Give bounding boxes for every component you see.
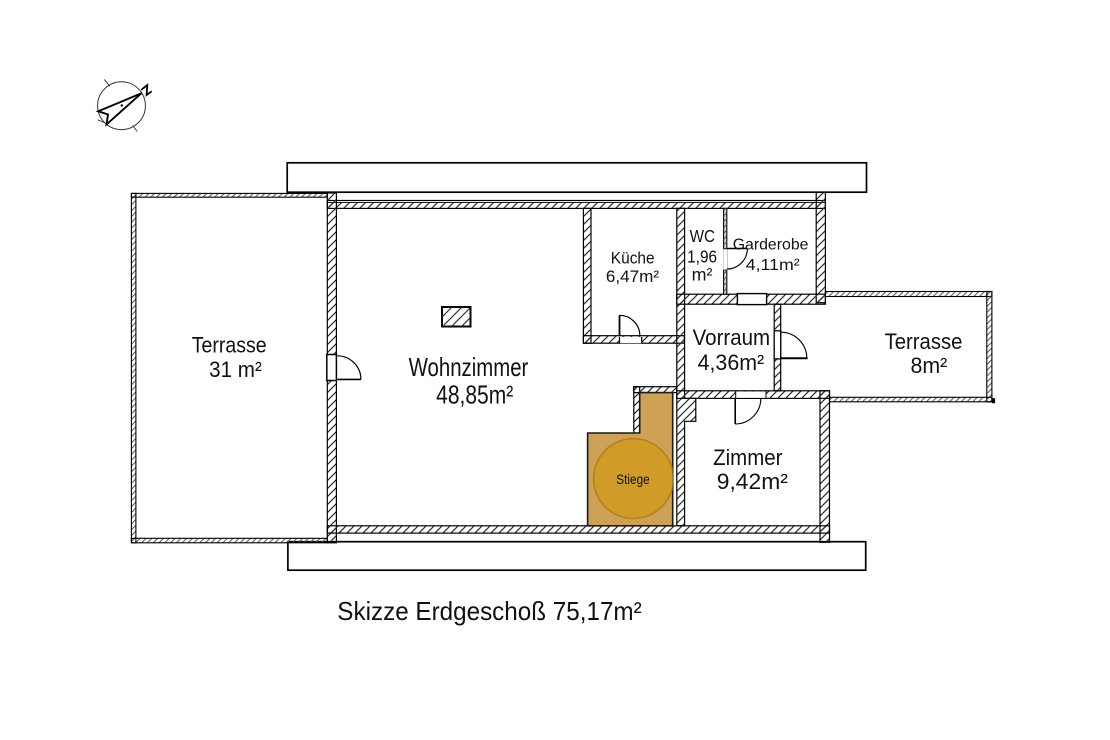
svg-text:31 m²: 31 m² bbox=[209, 357, 262, 382]
svg-text:m²: m² bbox=[692, 264, 713, 284]
svg-text:4,36m²: 4,36m² bbox=[698, 350, 765, 375]
svg-text:4,11m²: 4,11m² bbox=[746, 257, 801, 274]
svg-text:Stiege: Stiege bbox=[616, 471, 650, 487]
svg-text:Wohnzimmer: Wohnzimmer bbox=[409, 352, 529, 382]
svg-text:8m²: 8m² bbox=[911, 353, 948, 378]
svg-text:Skizze Erdgeschoß 75,17m²: Skizze Erdgeschoß 75,17m² bbox=[337, 596, 642, 626]
svg-text:Küche: Küche bbox=[611, 249, 655, 268]
svg-text:Garderobe: Garderobe bbox=[733, 236, 809, 253]
svg-text:Terrasse: Terrasse bbox=[192, 333, 267, 358]
svg-text:6,47m²: 6,47m² bbox=[606, 267, 660, 286]
svg-text:Vorraum: Vorraum bbox=[693, 325, 771, 350]
svg-text:WC: WC bbox=[690, 226, 715, 246]
svg-text:48,85m²: 48,85m² bbox=[436, 379, 513, 409]
svg-text:9,42m²: 9,42m² bbox=[717, 469, 788, 494]
svg-text:Zimmer: Zimmer bbox=[713, 445, 782, 470]
svg-text:Terrasse: Terrasse bbox=[885, 329, 963, 354]
